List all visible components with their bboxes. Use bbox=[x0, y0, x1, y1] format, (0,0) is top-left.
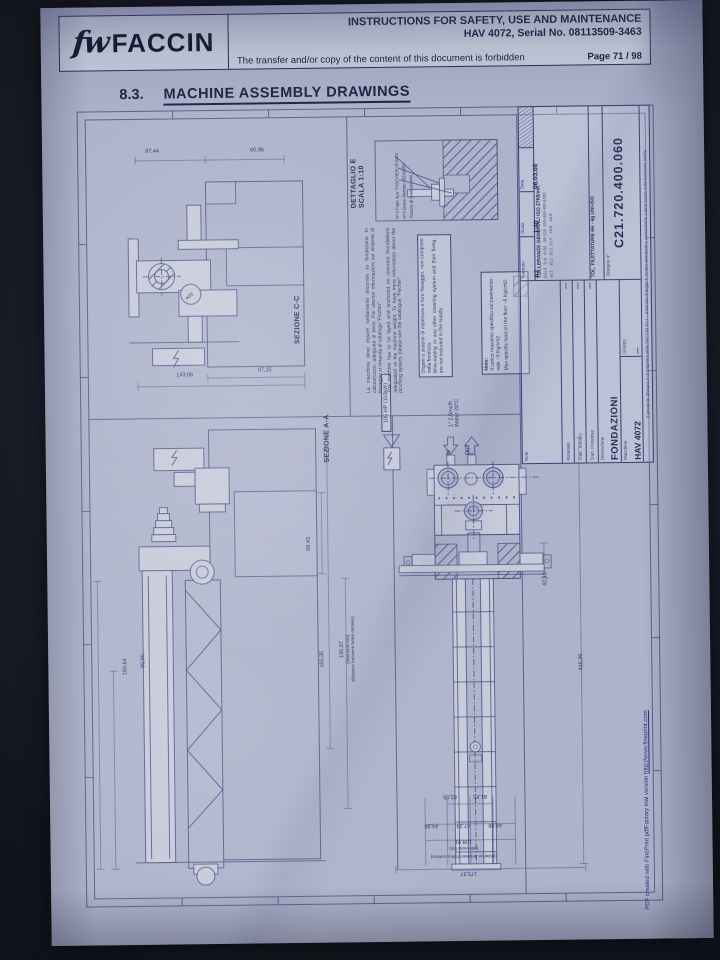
detail-callout: N°4 Barre filettate M24x300 bbox=[401, 141, 407, 219]
faccin-logo-mark-icon: fw bbox=[72, 28, 110, 58]
tb-protective-treatment-label: Tratt. Protettivo bbox=[588, 289, 595, 461]
dim-cc-width2: 60,96 bbox=[227, 147, 287, 154]
tb-heat-treatment-label: Tratt. Termico bbox=[576, 289, 583, 461]
tb-protective-treatment-value: — bbox=[587, 282, 594, 289]
view-section-cc bbox=[127, 181, 304, 368]
faccin-logo-text: FACCIN bbox=[112, 26, 215, 58]
covering-note: Organi o sistemi di copertura e loro fis… bbox=[417, 234, 453, 377]
dim-plan-row1b: 81,65 bbox=[465, 793, 495, 800]
dim-aa-right1: 98,43 bbox=[306, 527, 313, 551]
dim-plan-row1a: 82,05 bbox=[435, 793, 465, 800]
tb-tolerances-row2: ±0,1 ±0,1 ±0,2 ±0,3 ±0,5 ±0,8 bbox=[547, 109, 555, 278]
view-label-detail-scale: SCALA 1:10 bbox=[358, 146, 367, 208]
dim-plan-side: 42,13 bbox=[542, 562, 549, 586]
page-number: Page 71 / 98 bbox=[587, 51, 642, 63]
dim-cc-bottom1: 143,06 bbox=[160, 372, 210, 379]
section-number: 8.3. bbox=[119, 87, 143, 106]
document-page: fw FACCIN INSTRUCTIONS FOR SAFETY, USE A… bbox=[40, 0, 713, 946]
dim-cc-bottom2: 97,25 bbox=[240, 367, 290, 374]
tb-note-label: Note bbox=[522, 283, 529, 461]
in-label: IN bbox=[447, 441, 453, 455]
dim-plan-holes: 108,91 bbox=[438, 838, 488, 845]
view-plan bbox=[384, 433, 555, 871]
title-block: Note Materiale— Tratt. Termico— Tratt. P… bbox=[518, 105, 654, 465]
tb-group-label: Gruppo bbox=[621, 282, 627, 354]
foundation-note-en: The machine has to be layed and anchored… bbox=[386, 228, 406, 393]
pdf-watermark-url: http://www.fineprint.com bbox=[643, 710, 650, 774]
header-text-block: INSTRUCTIONS FOR SAFETY, USE AND MAINTEN… bbox=[228, 10, 650, 69]
dim-plan-total: 173,37 bbox=[449, 870, 489, 877]
section-title: MACHINE ASSEMBLY DRAWINGS bbox=[163, 84, 410, 106]
foundation-note: La macchina deve essere saldamente ancor… bbox=[365, 228, 413, 394]
power-arrow-icon bbox=[384, 435, 400, 447]
tb-scale-label: Scala bbox=[520, 194, 525, 234]
dim-aa-right2: 165,35 bbox=[319, 640, 326, 668]
tb-drawing-number: C21.720.400.060 bbox=[611, 109, 627, 276]
faccin-logo: fw FACCIN bbox=[59, 15, 229, 71]
view-section-aa bbox=[130, 429, 326, 886]
tb-description-label: Descrizione bbox=[598, 282, 605, 460]
dim-cc-width1: 97,44 bbox=[127, 148, 177, 155]
dim-plan-holes-label-it: (Interasse fori) bbox=[429, 846, 499, 852]
approval-stamp bbox=[519, 107, 533, 147]
tb-description-value: FONDAZIONI bbox=[609, 396, 621, 460]
out-label: OUT bbox=[466, 437, 472, 455]
tb-machine-value: HAV 4072 bbox=[632, 421, 642, 460]
dim-plan-bolt2: 47,24 bbox=[448, 822, 478, 829]
tb-material-value: — bbox=[563, 283, 570, 290]
tb-heat-treatment-value: — bbox=[575, 282, 582, 289]
view-label-section-aa: SEZIONE A-A bbox=[323, 405, 332, 463]
detail-callout: N°4 Fiale tipo "FISCHER" R M24 bbox=[394, 141, 400, 219]
foundation-note-it: La macchina deve essere saldamente ancor… bbox=[365, 228, 385, 393]
section-heading: 8.3. MACHINE ASSEMBLY DRAWINGS bbox=[119, 84, 410, 107]
dim-plan-bolt1: 44,96 bbox=[416, 822, 446, 829]
floor-load-note-en: Max specific load on the floor ~5 Kg/cm2… bbox=[503, 275, 510, 370]
covering-note-en: Wire-netting or any other covering syste… bbox=[432, 238, 445, 373]
photo-of-document: fw FACCIN INSTRUCTIONS FOR SAFETY, USE A… bbox=[0, 0, 720, 960]
dim-aa-left1: 169,84 bbox=[122, 647, 129, 675]
floor-load-note-it: Il carico massimo specifico sul paviment… bbox=[489, 275, 502, 370]
tb-format-label: Formato bbox=[520, 239, 525, 279]
header-copyright: The transfer and/or copy of the content … bbox=[237, 51, 588, 66]
water-temp-annotation: Water 20°C bbox=[454, 385, 461, 427]
dim-aa-left2: 95,95 bbox=[140, 644, 147, 668]
dim-plan-bolt3: 44,96 bbox=[480, 821, 510, 828]
tb-drawing-number-label: Disegno n° bbox=[604, 109, 611, 276]
dim-plan-length: 415,39 bbox=[578, 640, 585, 670]
detail-callout: Piastra di livellamento bbox=[408, 141, 414, 219]
view-label-section-cc: SEZIONE C-C bbox=[294, 286, 303, 344]
tb-material-label: Materiale bbox=[564, 289, 571, 461]
tb-machine-label: Macchina bbox=[622, 359, 628, 460]
document-header: fw FACCIN INSTRUCTIONS FOR SAFETY, USE A… bbox=[58, 9, 651, 72]
tb-date-label: Data bbox=[519, 150, 524, 190]
